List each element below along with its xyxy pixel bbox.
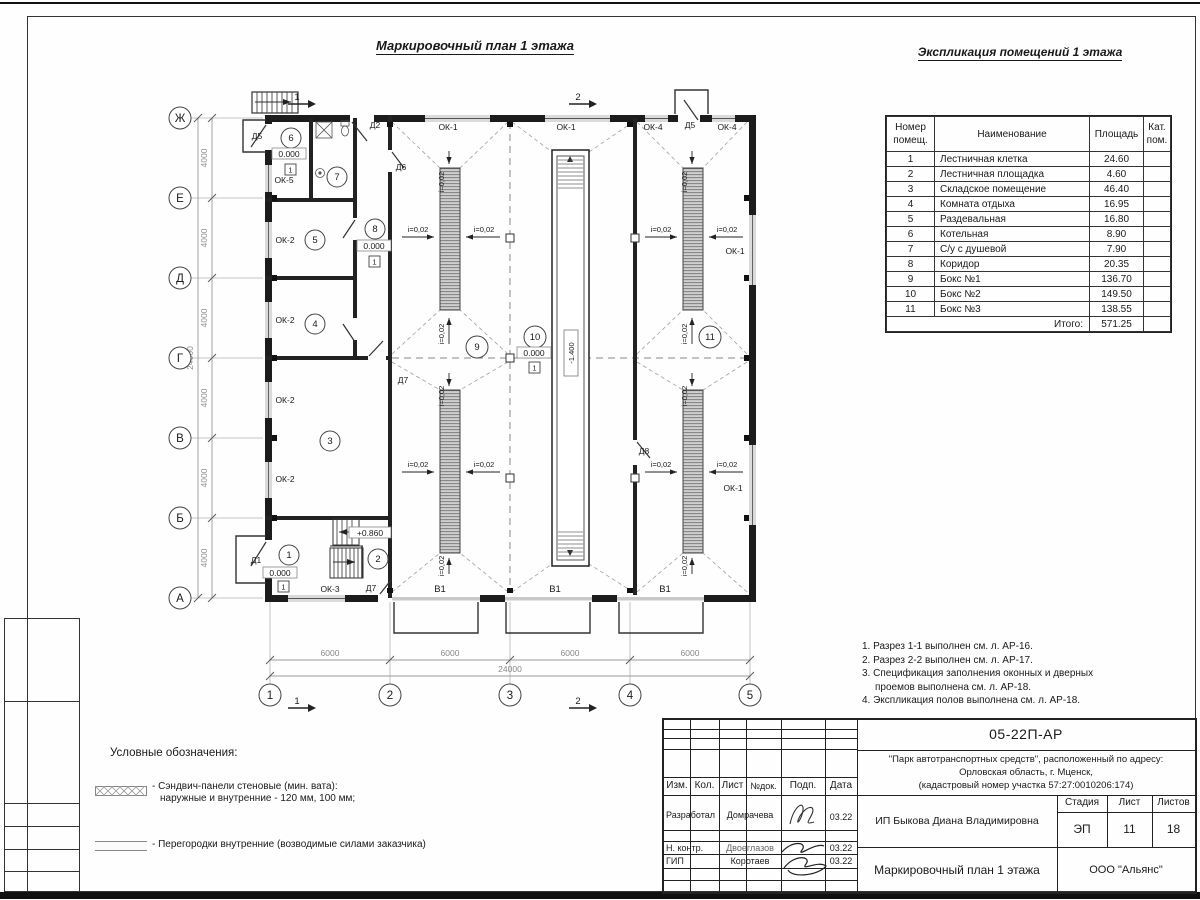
role-ncontrol: Н. контр.	[666, 843, 720, 853]
svg-text:Б: Б	[176, 513, 184, 525]
sheet-label: Лист	[1107, 797, 1152, 808]
svg-text:4: 4	[312, 319, 317, 330]
role-developed: Разработал	[666, 810, 720, 820]
svg-text:i=0,02: i=0,02	[680, 556, 689, 577]
name-ncontrol: Двоеглазов	[719, 843, 781, 853]
svg-text:1: 1	[267, 690, 273, 702]
gate-label: В1	[659, 584, 671, 595]
signature	[778, 838, 830, 880]
svg-text:i=0,02: i=0,02	[408, 460, 429, 469]
doc-number: 05-22П-АР	[857, 726, 1195, 742]
name-developed: Домрачева	[719, 810, 781, 820]
sheet-value: 11	[1107, 822, 1152, 836]
pit-level-label: -1.400	[567, 342, 576, 363]
date-developed: 03.22	[825, 812, 857, 822]
window-label: ОК-1	[723, 483, 742, 493]
svg-text:Ж: Ж	[175, 113, 186, 125]
svg-text:6000: 6000	[681, 648, 700, 658]
grid-bubble-labels: Ж Е Д Г В Б А 1 2 3 4 5	[175, 113, 754, 702]
svg-text:i=0,02: i=0,02	[437, 172, 446, 193]
svg-text:2: 2	[575, 696, 580, 707]
svg-text:i=0,02: i=0,02	[680, 172, 689, 193]
door-label: Д5	[685, 120, 696, 130]
window-label: ОК-5	[274, 175, 293, 185]
window-label: ОК-1	[438, 122, 457, 132]
svg-text:0.000: 0.000	[278, 149, 300, 159]
svg-text:3: 3	[507, 690, 513, 702]
svg-text:4000: 4000	[199, 548, 209, 567]
svg-text:4000: 4000	[199, 308, 209, 327]
svg-text:5: 5	[312, 235, 317, 246]
svg-text:2: 2	[375, 554, 380, 565]
svg-text:24000: 24000	[498, 664, 522, 674]
svg-text:i=0,02: i=0,02	[651, 460, 672, 469]
window-label: ОК-3	[320, 584, 339, 594]
svg-text:0.000: 0.000	[363, 241, 385, 251]
stage-label: Стадия	[1057, 797, 1107, 808]
sheets-value: 18	[1152, 822, 1195, 836]
window-label: ОК-2	[275, 235, 294, 245]
svg-text:i=0,02: i=0,02	[437, 386, 446, 407]
door-label: Д5	[252, 131, 263, 141]
svg-text:i=0,02: i=0,02	[717, 460, 738, 469]
sheet-name: Маркировочный план 1 этажа	[857, 863, 1057, 877]
gates	[392, 597, 704, 601]
svg-text:1: 1	[286, 550, 291, 561]
svg-text:i=0,02: i=0,02	[408, 225, 429, 234]
signature	[784, 798, 824, 830]
svg-text:5: 5	[747, 690, 753, 702]
svg-text:Д: Д	[176, 273, 184, 285]
svg-text:i=0,02: i=0,02	[437, 324, 446, 345]
window-label: ОК-2	[275, 315, 294, 325]
svg-text:А: А	[176, 593, 184, 605]
door-label: Д7	[366, 583, 377, 593]
svg-text:10: 10	[530, 332, 541, 343]
level-marks: 0.000 0.000 0.000 0.000 +0.860 1 1 1 1	[263, 148, 551, 592]
col-header-izm: Изм.	[664, 780, 690, 791]
window-label: ОК-1	[725, 246, 744, 256]
project-line: "Парк автотранспортных средств", располо…	[861, 753, 1191, 766]
svg-text:1: 1	[372, 258, 376, 267]
inspection-pit: -1.400	[552, 150, 589, 566]
svg-text:0.000: 0.000	[523, 348, 545, 358]
svg-text:9: 9	[474, 342, 479, 353]
svg-text:3: 3	[327, 436, 332, 447]
svg-text:i=0,02: i=0,02	[437, 556, 446, 577]
company-name: ООО "Альянс"	[1057, 864, 1195, 876]
svg-text:4000: 4000	[199, 148, 209, 167]
door-label: Д2	[370, 120, 381, 130]
project-line: (кадастровый номер участка 57:27:0010206…	[861, 779, 1191, 792]
svg-text:2: 2	[575, 92, 580, 103]
svg-text:8: 8	[372, 224, 377, 235]
room-numbers: 1 2 3 4 5 6 7 8 9 10 11	[286, 133, 715, 565]
svg-text:6000: 6000	[441, 648, 460, 658]
door-label: Д6	[396, 162, 407, 172]
svg-text:2: 2	[387, 690, 393, 702]
svg-text:4: 4	[627, 690, 634, 702]
svg-text:1: 1	[288, 166, 292, 175]
project-line: Орловская область, г. Мценск,	[861, 766, 1191, 779]
svg-text:1: 1	[294, 92, 299, 103]
room-circles	[279, 128, 721, 569]
col-header-doc: №док.	[746, 781, 781, 791]
svg-text:1: 1	[532, 364, 536, 373]
svg-text:i=0,02: i=0,02	[717, 225, 738, 234]
stage-value: ЭП	[1057, 822, 1107, 836]
external-stair	[252, 92, 298, 113]
window-label: ОК-4	[717, 122, 736, 132]
svg-text:4000: 4000	[199, 468, 209, 487]
svg-text:i=0,02: i=0,02	[474, 460, 495, 469]
svg-text:Е: Е	[176, 193, 184, 205]
window-label: ОК-4	[643, 122, 662, 132]
sheets-label: Листов	[1152, 797, 1195, 808]
svg-text:i=0,02: i=0,02	[651, 225, 672, 234]
door-label: Д1	[251, 555, 262, 565]
door-label: Д8	[639, 446, 650, 456]
window-label: ОК-2	[275, 395, 294, 405]
drawing-sheet: Маркировочный план 1 этажа Экспликация п…	[0, 0, 1200, 900]
project-name: "Парк автотранспортных средств", располо…	[861, 753, 1191, 792]
col-header-sign: Подп.	[781, 780, 825, 791]
col-header-kol: Кол.	[690, 780, 719, 791]
aprons	[236, 90, 708, 633]
grid-bubbles	[169, 107, 761, 706]
svg-text:4000: 4000	[199, 228, 209, 247]
role-gip: ГИП	[666, 856, 720, 866]
svg-text:+0.860: +0.860	[357, 528, 384, 538]
svg-text:7: 7	[334, 172, 339, 183]
svg-text:i=0,02: i=0,02	[680, 324, 689, 345]
svg-text:i=0,02: i=0,02	[680, 386, 689, 407]
window-label: ОК-2	[275, 474, 294, 484]
svg-text:4000: 4000	[199, 388, 209, 407]
svg-text:11: 11	[705, 332, 715, 343]
col-header-date: Дата	[825, 780, 857, 791]
gate-label: В1	[434, 584, 446, 595]
svg-text:0.000: 0.000	[269, 568, 291, 578]
title-block: Изм. Кол. Лист №док. Подп. Дата Разработ…	[662, 718, 1197, 894]
window-label: ОК-1	[556, 122, 575, 132]
gate-label: В1	[549, 584, 561, 595]
svg-text:6000: 6000	[561, 648, 580, 658]
svg-text:i=0,02: i=0,02	[474, 225, 495, 234]
svg-text:1: 1	[281, 583, 285, 592]
svg-text:Г: Г	[177, 353, 184, 365]
svg-text:6000: 6000	[321, 648, 340, 658]
client-name: ИП Быкова Диана Владимировна	[857, 815, 1057, 827]
door-label: Д7	[398, 375, 409, 385]
svg-text:В: В	[176, 433, 184, 445]
col-header-list: Лист	[719, 780, 746, 791]
svg-text:1: 1	[294, 696, 299, 707]
toilet-bowl-icon	[342, 126, 349, 136]
svg-text:6: 6	[288, 133, 293, 144]
name-gip: Коротаев	[719, 856, 781, 866]
